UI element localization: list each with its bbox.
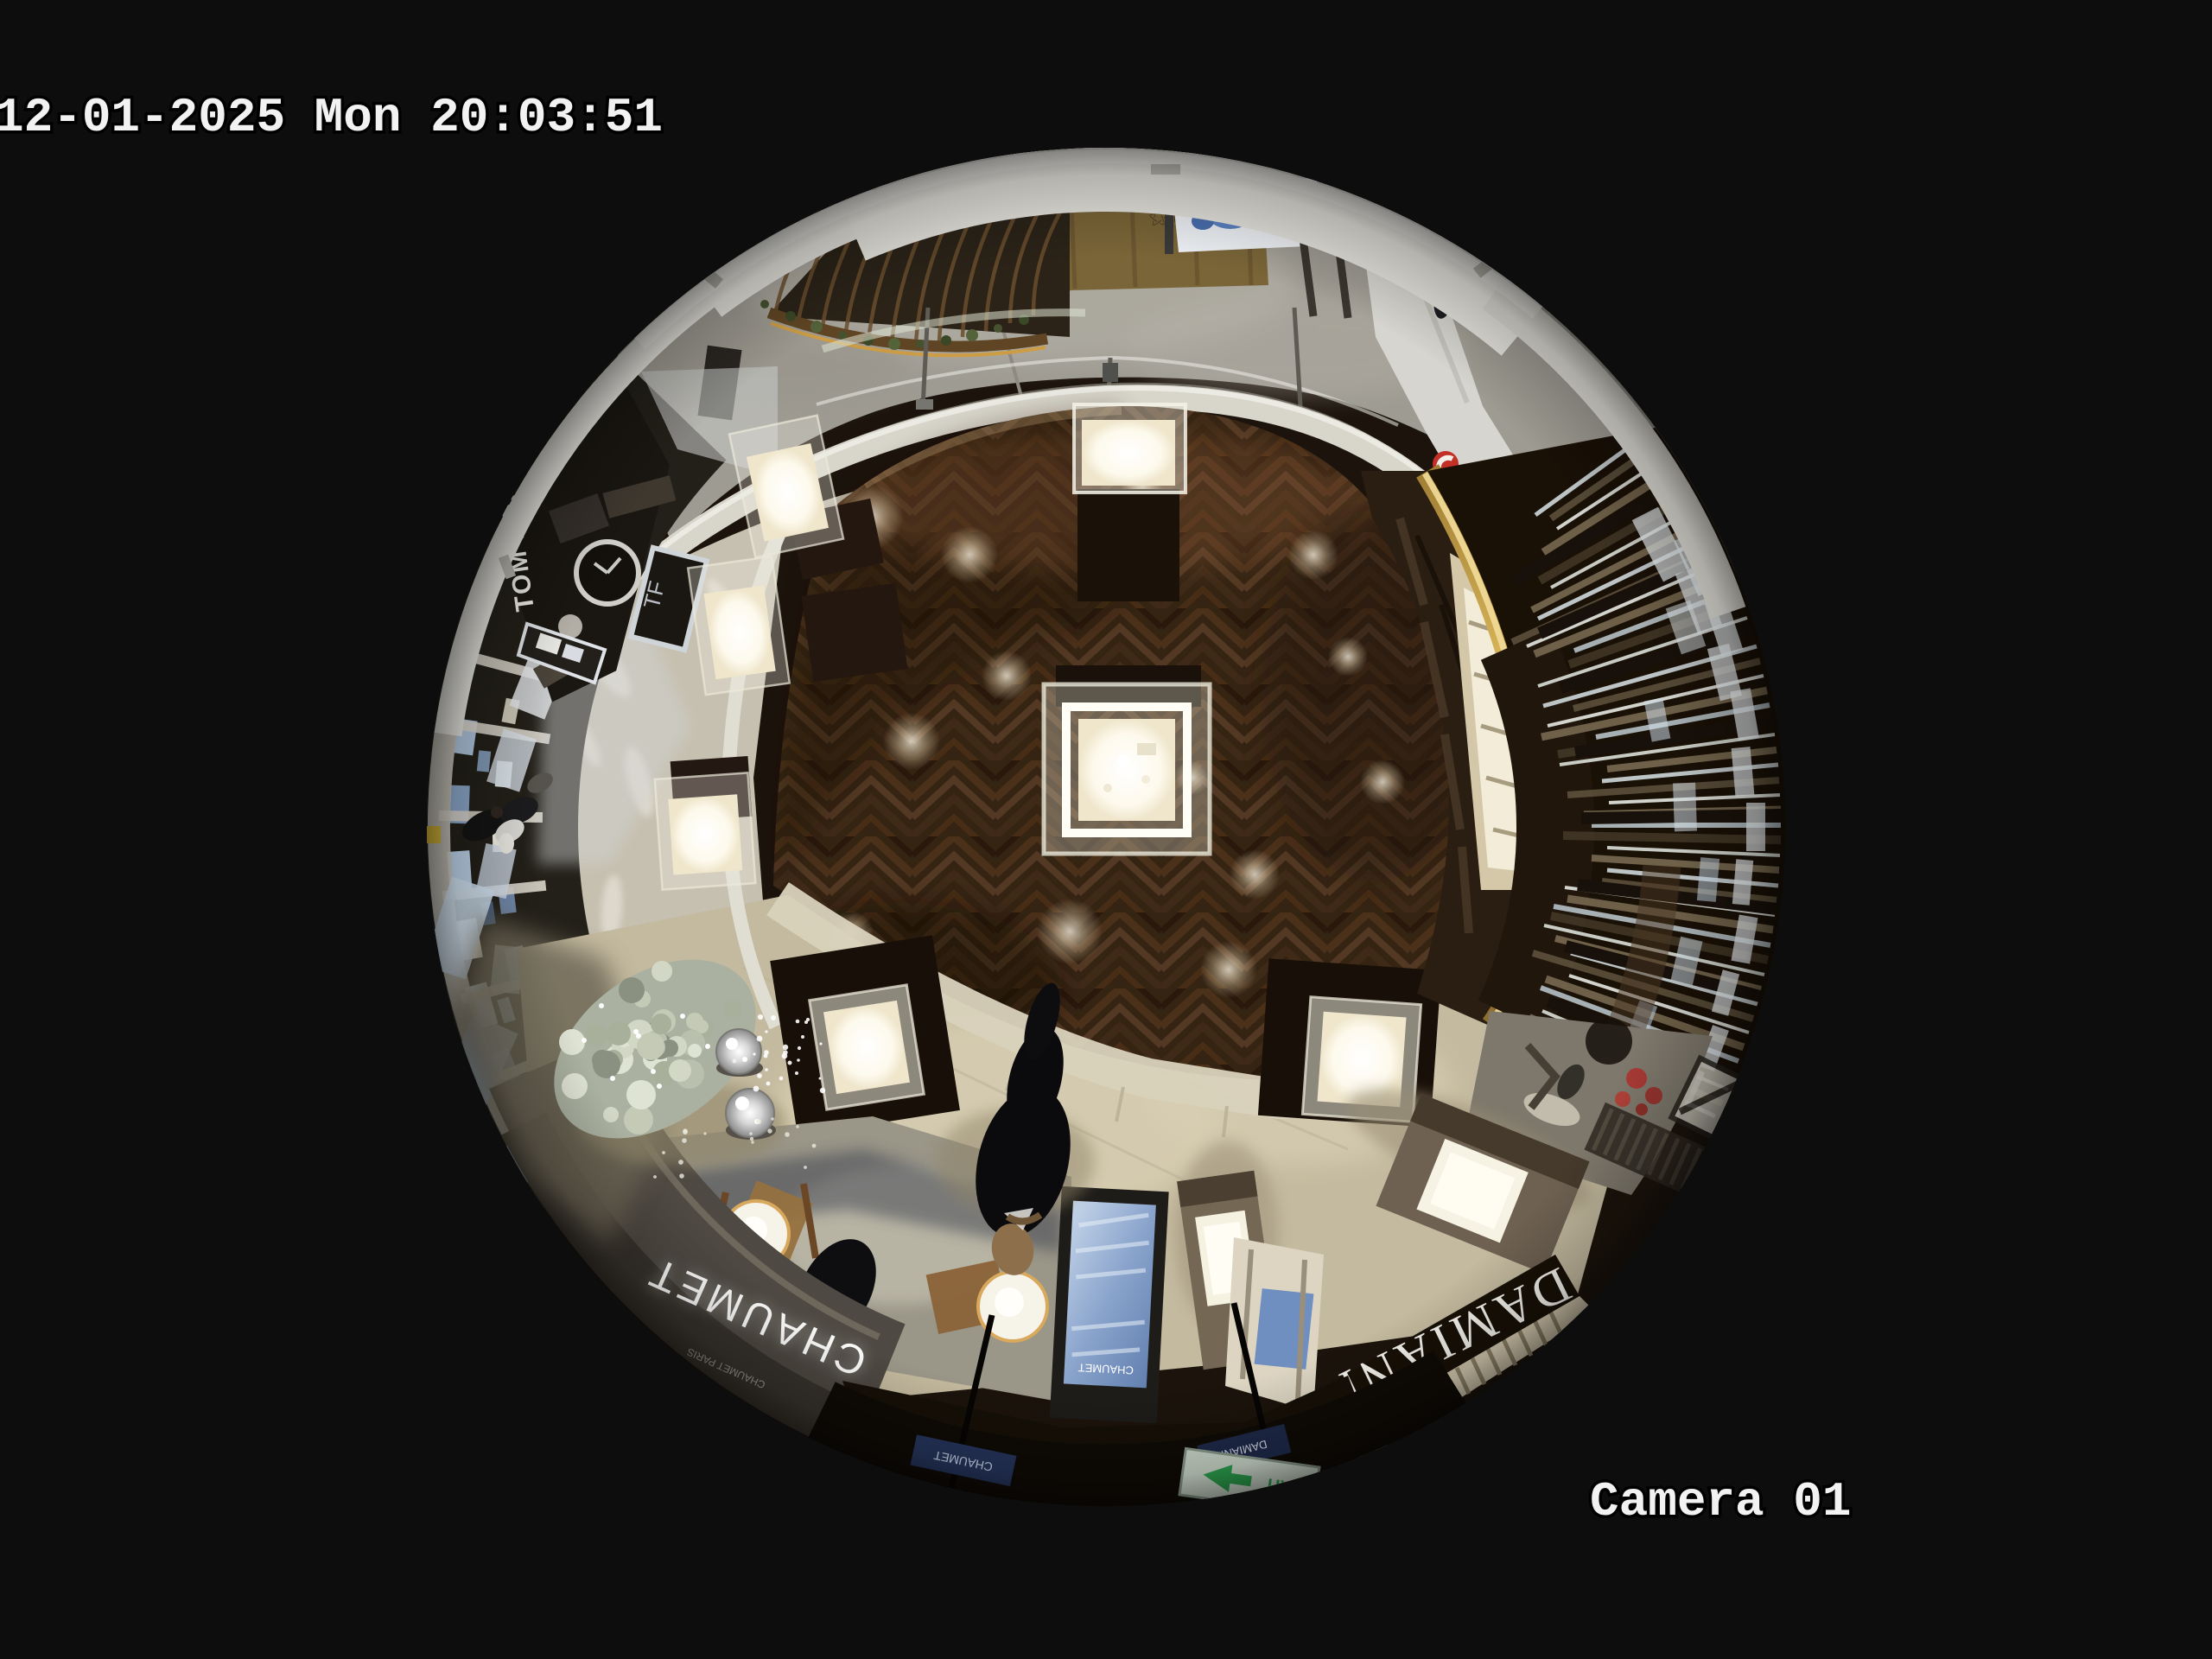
svg-text:Camera 01: Camera 01: [1590, 1474, 1851, 1529]
svg-text:12-01-2025 Mon 20:03:51: 12-01-2025 Mon 20:03:51: [0, 90, 663, 145]
